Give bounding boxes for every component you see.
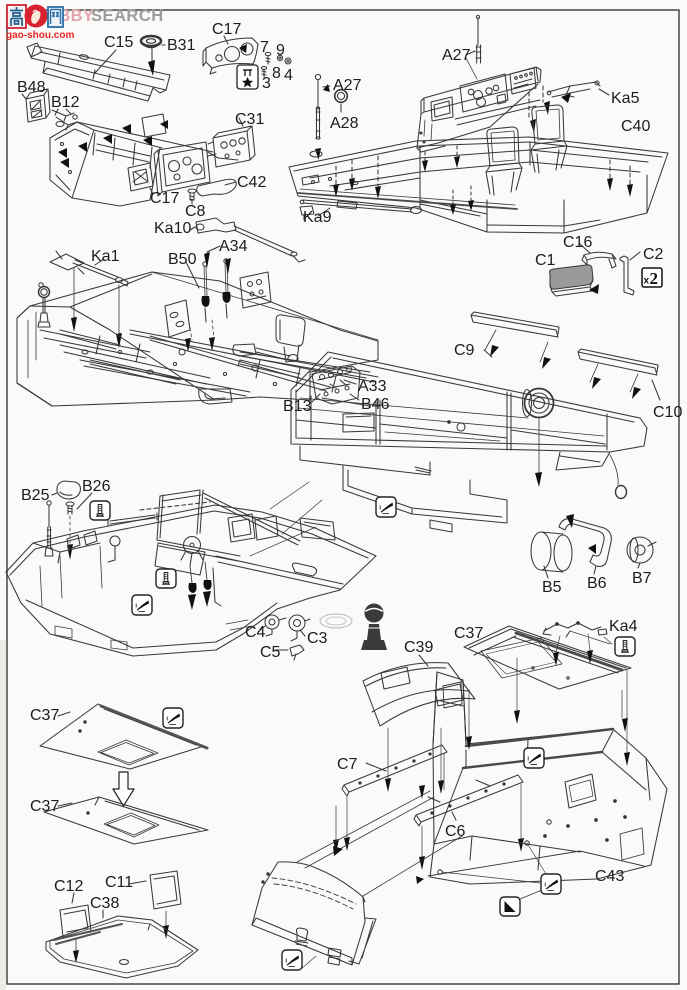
svg-text:C17: C17 (212, 21, 241, 38)
svg-text:A33: A33 (358, 378, 387, 395)
svg-text:B31: B31 (167, 37, 196, 54)
svg-text:C10: C10 (653, 404, 682, 421)
svg-text:C37: C37 (30, 707, 59, 724)
svg-text:B6: B6 (587, 575, 607, 592)
svg-text:C37: C37 (30, 798, 59, 815)
svg-text:7: 7 (260, 39, 269, 56)
svg-text:gao-shou.com: gao-shou.com (6, 30, 74, 41)
svg-text:C12: C12 (54, 878, 83, 895)
svg-text:C39: C39 (404, 639, 433, 656)
svg-text:C3: C3 (307, 630, 328, 647)
svg-text:Ka1: Ka1 (91, 248, 120, 265)
svg-text:B50: B50 (168, 251, 197, 268)
svg-text:SEARCH: SEARCH (91, 7, 164, 25)
svg-text:C38: C38 (90, 895, 119, 912)
svg-text:C17: C17 (150, 190, 179, 207)
svg-text:Ka5: Ka5 (611, 90, 640, 107)
svg-text:C6: C6 (445, 823, 466, 840)
svg-text:C40: C40 (621, 118, 650, 135)
svg-text:C4: C4 (245, 624, 266, 641)
svg-text:C11: C11 (105, 874, 133, 891)
svg-text:C31: C31 (235, 111, 264, 128)
svg-text:A27: A27 (333, 77, 362, 94)
svg-text:C16: C16 (563, 234, 592, 251)
svg-text:B46: B46 (361, 396, 390, 413)
svg-text:9: 9 (276, 42, 285, 59)
svg-text:Ka4: Ka4 (609, 618, 638, 635)
svg-text:B7: B7 (632, 570, 652, 587)
svg-text:C42: C42 (237, 174, 266, 191)
svg-text:C2: C2 (643, 246, 664, 263)
svg-text:3: 3 (262, 75, 271, 92)
svg-text:C8: C8 (185, 203, 206, 220)
svg-text:8: 8 (272, 65, 281, 82)
svg-text:C15: C15 (104, 34, 133, 51)
svg-text:A28: A28 (330, 115, 359, 132)
svg-text:A34: A34 (219, 238, 248, 255)
svg-text:B26: B26 (82, 478, 111, 495)
svg-text:B25: B25 (21, 487, 50, 504)
svg-text:C43: C43 (595, 868, 624, 885)
svg-text:4: 4 (284, 67, 293, 84)
svg-text:B5: B5 (542, 579, 562, 596)
svg-text:B13: B13 (283, 398, 312, 415)
svg-text:B12: B12 (51, 94, 80, 111)
svg-text:A27: A27 (442, 47, 471, 64)
svg-text:Ka10: Ka10 (154, 220, 191, 237)
svg-text:B48: B48 (17, 79, 46, 96)
svg-text:C5: C5 (260, 644, 281, 661)
svg-text:C9: C9 (454, 342, 475, 359)
svg-text:Ka9: Ka9 (303, 209, 332, 226)
svg-text:C1: C1 (535, 252, 556, 269)
svg-text:C7: C7 (337, 756, 358, 773)
svg-text:C37: C37 (454, 625, 483, 642)
